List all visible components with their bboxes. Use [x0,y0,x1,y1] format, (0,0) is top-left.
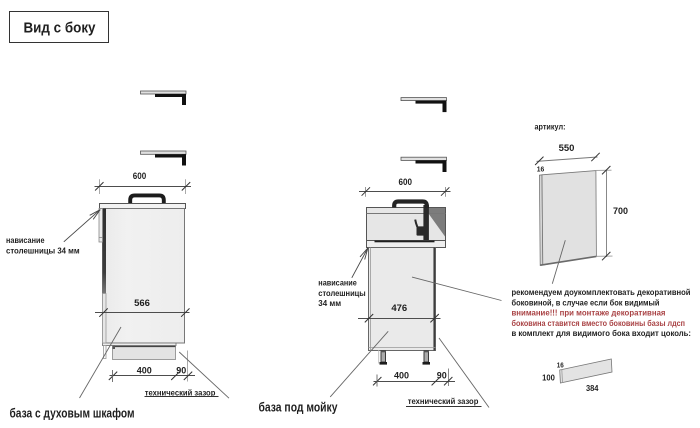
svg-text:база под мойку: база под мойку [259,399,339,414]
svg-text:нависание: нависание [318,278,357,288]
svg-text:566: 566 [134,298,150,309]
svg-text:34 мм: 34 мм [318,298,341,308]
svg-text:384: 384 [586,383,599,393]
svg-text:рекомендуем доукомплектовать д: рекомендуем доукомплектовать декоративно… [512,287,691,297]
svg-text:100: 100 [542,373,555,382]
svg-text:артикул:: артикул: [535,122,566,132]
svg-text:600: 600 [399,177,413,187]
svg-text:боковиной, в случае если бок в: боковиной, в случае если бок видимый [512,297,660,307]
svg-text:нависание: нависание [6,235,45,245]
svg-text:16: 16 [537,165,545,174]
svg-text:400: 400 [137,365,152,375]
svg-text:600: 600 [133,171,147,181]
svg-text:внимание!!! при монтаже декора: внимание!!! при монтаже декоративная [512,308,666,318]
svg-text:400: 400 [394,371,409,381]
svg-text:550: 550 [559,143,575,154]
svg-text:база с духовым шкафом: база с духовым шкафом [10,405,135,420]
svg-text:16: 16 [557,361,564,370]
svg-text:столешницы: столешницы [318,288,365,298]
svg-text:в комплект для видимого бока в: в комплект для видимого бока входит цоко… [512,328,692,338]
svg-text:476: 476 [391,303,407,314]
svg-text:столешницы 34 мм: столешницы 34 мм [6,246,80,256]
svg-text:боковина ставится вместо боков: боковина ставится вместо боковины базы л… [512,318,686,328]
svg-text:Вид с боку: Вид с боку [24,19,97,36]
svg-text:700: 700 [613,206,628,217]
svg-text:технический зазор: технический зазор [408,396,479,406]
